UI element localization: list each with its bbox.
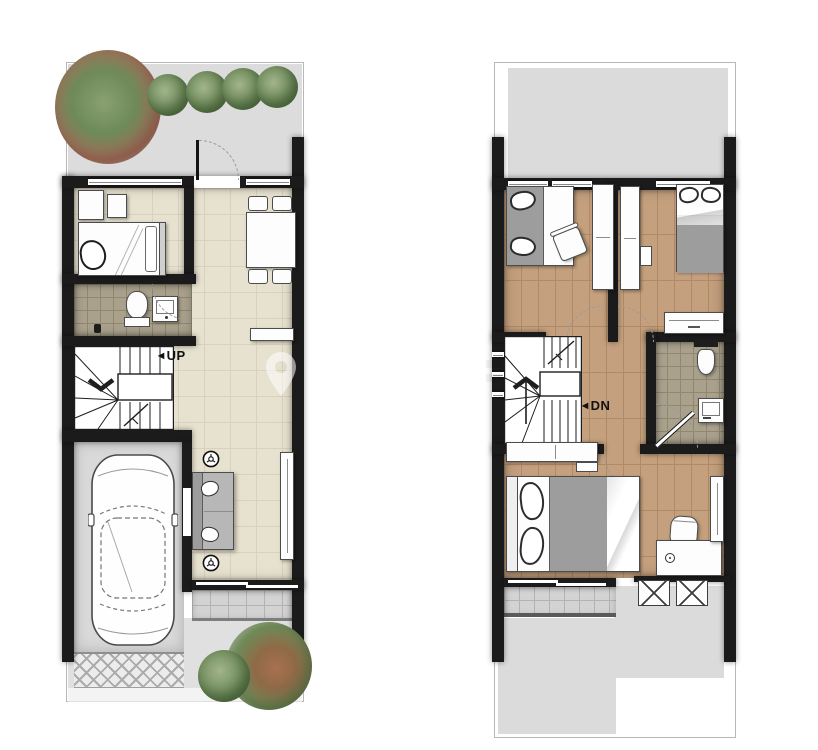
stair-window — [492, 350, 504, 359]
floor-plan-canvas: ◀ UP — [0, 0, 818, 750]
tv-console — [280, 452, 294, 560]
bed-icon — [676, 184, 724, 272]
wall-right — [724, 137, 736, 662]
bed-pillow — [518, 481, 546, 522]
dn-label: ◀ DN — [582, 399, 610, 412]
dresser — [664, 312, 724, 334]
bed-blanket — [549, 477, 609, 571]
toilet-icon — [126, 291, 148, 319]
sofa-icon — [192, 472, 234, 550]
ac-unit-icon — [676, 580, 708, 606]
wall-left — [492, 137, 504, 662]
plan-second-floor: ◀ DN — [408, 0, 818, 750]
bed-fold — [677, 207, 723, 225]
roof-rear-left — [498, 618, 616, 734]
dining-chair-icon — [272, 269, 292, 284]
nightstand — [78, 190, 104, 220]
floor-drain-icon — [94, 324, 101, 333]
bed-pillow — [700, 186, 722, 204]
balcony-railing — [504, 613, 616, 617]
dining-table-icon — [246, 212, 296, 268]
dn-marker-icon: ◀ — [582, 402, 589, 410]
ceiling-light-icon — [202, 554, 220, 572]
bed-headboard — [507, 477, 518, 571]
location-pin-icon — [266, 352, 296, 396]
sliding-door-panel-1 — [196, 582, 248, 585]
bed-pillow — [509, 235, 537, 257]
watermark-letter-fragment — [486, 360, 502, 368]
bedside-lamp-table — [107, 194, 127, 218]
ceiling-light-icon — [202, 450, 220, 468]
balcony-floor — [504, 586, 616, 616]
tree-icon — [198, 650, 250, 702]
bed-fold — [607, 477, 639, 571]
toilet-tank — [694, 340, 718, 347]
dining-window — [246, 177, 290, 187]
wardrobe — [592, 184, 614, 290]
sliding-door-panel-1 — [508, 580, 558, 583]
wardrobe — [620, 186, 640, 290]
bed-fold-line — [113, 225, 143, 275]
plan-first-floor: ◀ UP — [0, 0, 410, 750]
staircase-down-icon — [504, 336, 582, 444]
up-marker-icon: ◀ — [158, 352, 165, 360]
bed-headboard — [159, 223, 165, 275]
wall-bathroom-left — [646, 332, 656, 452]
toilet-tank — [124, 317, 150, 327]
car-icon — [88, 452, 178, 648]
closet-shelf — [576, 462, 598, 472]
tv-console — [710, 476, 724, 542]
garage-door-gap — [183, 488, 191, 536]
stair-window — [492, 390, 504, 399]
driveway — [74, 652, 184, 688]
toilet-icon — [697, 349, 715, 375]
desk-lamp-icon — [665, 553, 675, 563]
dining-chair-icon — [272, 196, 292, 211]
wall-left — [62, 176, 74, 662]
wall-bathroom-bottom — [62, 336, 196, 346]
sliding-door-panel-2 — [556, 583, 606, 586]
sliding-door-panel-2 — [246, 585, 298, 588]
dn-text: DN — [591, 399, 611, 412]
sink-icon — [698, 398, 724, 423]
bed-pillow — [509, 189, 538, 212]
dining-chair-icon — [248, 196, 268, 211]
ac-unit-icon — [638, 580, 670, 606]
tree-icon — [147, 74, 189, 116]
up-label: ◀ UP — [158, 349, 186, 362]
desk — [656, 540, 722, 576]
watermark-letter-fragment — [486, 374, 502, 382]
terrace-edge — [192, 618, 292, 621]
bed-pillow — [518, 526, 546, 566]
bed-pillow — [145, 226, 157, 272]
wall-bedroom-divider — [184, 188, 194, 280]
terrace-floor — [192, 590, 292, 620]
dining-chair-icon — [248, 269, 268, 284]
tree-icon — [256, 66, 298, 108]
closet — [506, 442, 598, 462]
bed-double-icon — [506, 476, 640, 572]
wall-counter — [250, 328, 294, 341]
bedroom-window — [88, 177, 182, 187]
bed-pillow — [678, 186, 700, 205]
wall-stairs-bottom — [62, 430, 192, 442]
up-text: UP — [167, 349, 186, 362]
roof-front — [508, 68, 728, 178]
shelf — [640, 246, 652, 266]
tree-icon — [55, 50, 161, 164]
